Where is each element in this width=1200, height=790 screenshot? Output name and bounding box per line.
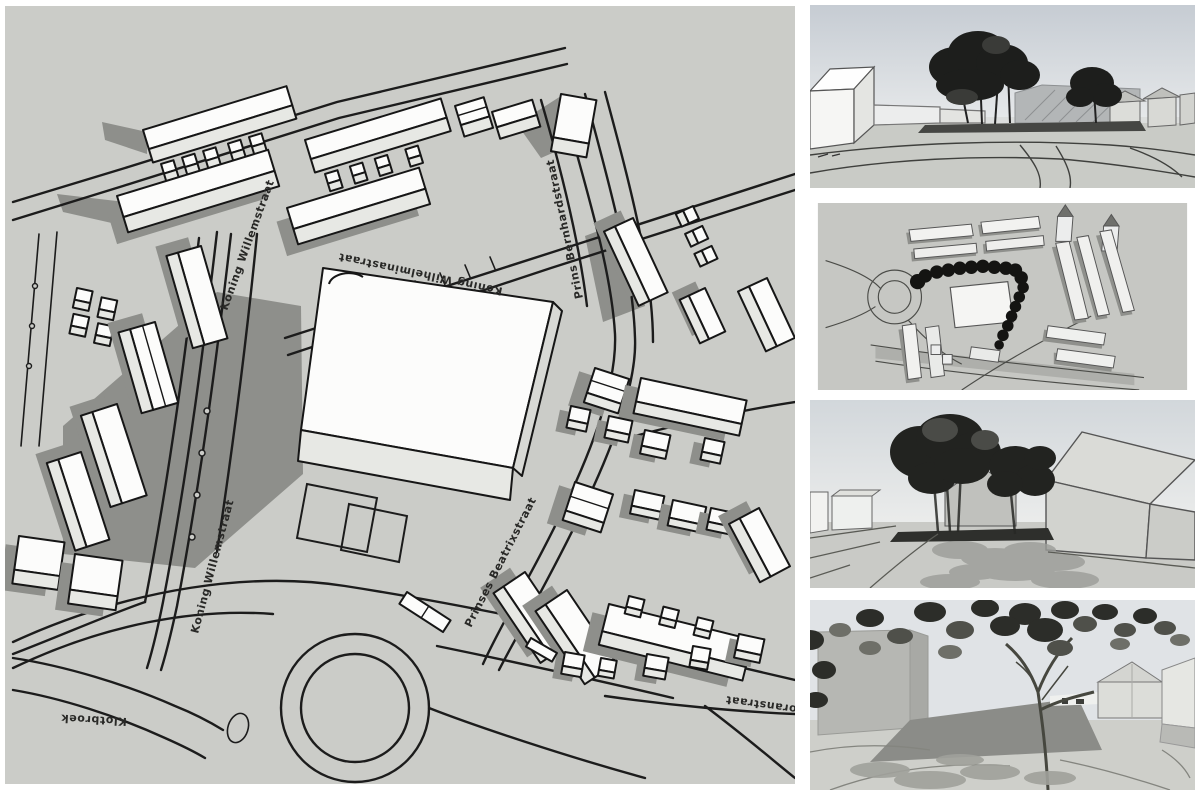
left-walls [810, 490, 880, 533]
aerial-central-slab [950, 282, 1013, 328]
panel-street-perspective-2 [810, 400, 1195, 588]
panel-street-perspective-3 [810, 600, 1195, 790]
panel-street-perspective-1 [810, 5, 1195, 188]
panel-aerial-massing [810, 203, 1195, 390]
central-bigbox-building [298, 268, 562, 500]
ground [810, 123, 1195, 188]
site-plan-panel: Koning Willemstraat Koning Willemstraat … [5, 6, 795, 784]
axonometric-site-plan: Koning Willemstraat Koning Willemstraat … [5, 6, 795, 784]
architecture-presentation-collage: Koning Willemstraat Koning Willemstraat … [0, 0, 1200, 790]
